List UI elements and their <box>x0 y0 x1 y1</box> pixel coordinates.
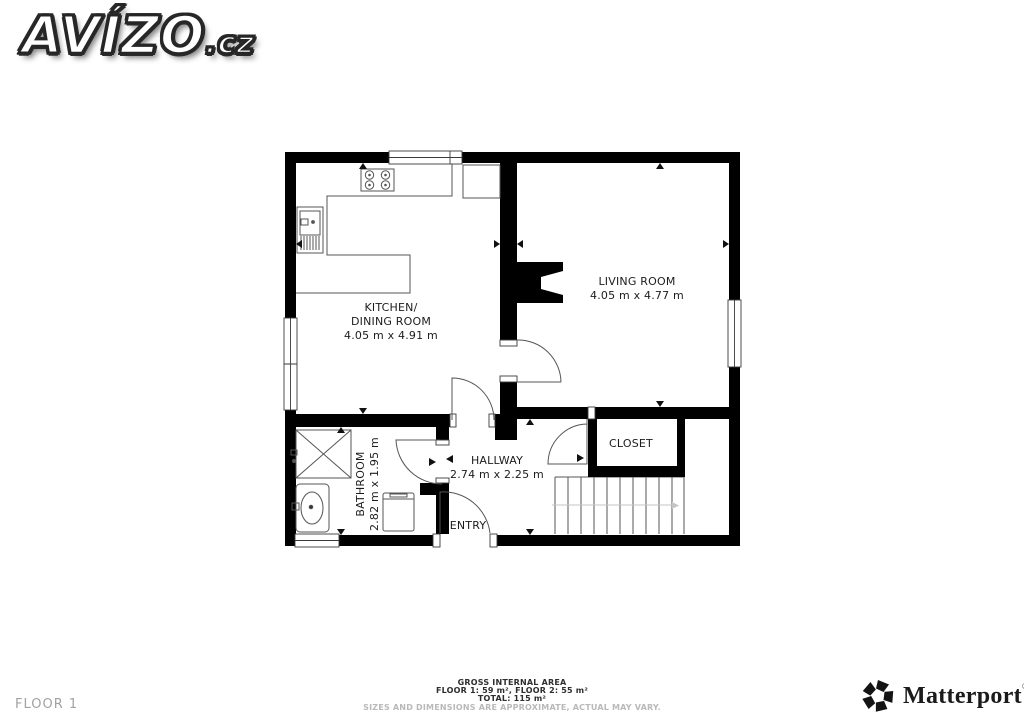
stove-symbol <box>361 169 394 191</box>
floor-number-label: FLOOR 1 <box>15 697 78 712</box>
avizo-logo-text: AVÍZO <box>22 6 205 66</box>
wall-bathroom-stub <box>420 483 449 495</box>
toilet-symbol <box>383 493 414 531</box>
shower-symbol <box>291 430 351 478</box>
doors <box>396 340 587 533</box>
living-door-jamb-top <box>500 340 517 346</box>
floorplan-svg: KITCHEN/ DINING ROOM 4.05 m x 4.91 m LIV… <box>0 0 1024 724</box>
stairs <box>552 477 684 534</box>
wall-bottom <box>285 535 740 546</box>
kitchen-door-jamb-left <box>450 414 456 427</box>
wall-closet-right <box>677 419 685 477</box>
door-kitchen-living <box>517 340 561 382</box>
wall-closet-left <box>588 419 597 474</box>
wall-kitchen-living-upper <box>500 163 517 340</box>
kitchen-counter-outline <box>296 164 452 293</box>
matterport-pinwheel-icon <box>860 678 896 714</box>
wall-kitchen-bottom <box>285 414 450 427</box>
refrigerator-symbol <box>463 165 500 198</box>
closet-doorway-frame <box>588 407 595 419</box>
entry-doorway-clear <box>440 534 490 547</box>
hallway-label: HALLWAY <box>471 454 523 467</box>
window-living-right <box>728 300 741 367</box>
wall-top <box>285 152 740 163</box>
wall-closet-bottom <box>588 466 685 477</box>
matterport-logo: Matterport® <box>860 678 1024 714</box>
bathroom-door-jamb-bottom <box>436 478 449 483</box>
matterport-wordmark: Matterport® <box>903 682 1024 710</box>
door-kitchen-hallway <box>452 378 494 420</box>
living-label-dims: 4.05 m x 4.77 m <box>590 289 684 302</box>
avizo-logo-tld: .cz <box>205 26 255 61</box>
kitchen-label-dims: 4.05 m x 4.91 m <box>344 329 438 342</box>
window-kitchen-left <box>284 318 297 410</box>
living-door-jamb-bottom <box>500 376 517 382</box>
bathroom-fixtures <box>291 430 414 532</box>
wall-living-bottom-right <box>595 407 740 419</box>
sink-symbol <box>292 484 329 532</box>
entry-jamb-right <box>490 534 497 547</box>
kitchen-label-line2: DINING ROOM <box>351 315 431 328</box>
floorplan-page: AVÍZO.cz <box>0 0 1024 724</box>
hallway-label-dims: 2.74 m x 2.25 m <box>450 468 544 481</box>
stairs-direction-arrow <box>672 502 679 509</box>
entry-label: ENTRY <box>450 519 487 532</box>
avizo-logo: AVÍZO.cz <box>22 6 255 66</box>
kitchen-label-line1: KITCHEN/ <box>365 301 418 314</box>
bathroom-label-dims: 2.82 m x 1.95 m <box>368 437 381 531</box>
wall-hallway-stub <box>495 414 517 440</box>
living-label: LIVING ROOM <box>598 275 675 288</box>
window-bathroom-bottom <box>295 534 339 547</box>
bathroom-label: BATHROOM <box>354 451 367 516</box>
window-kitchen-top <box>389 151 462 164</box>
door-jambs <box>433 340 595 547</box>
wall-living-bottom-left <box>517 407 588 419</box>
bathroom-door-jamb-top <box>436 440 449 445</box>
wall-bathroom-right-upper <box>436 427 449 440</box>
closet-label: CLOSET <box>609 437 653 450</box>
entry-jamb-left <box>433 534 440 547</box>
